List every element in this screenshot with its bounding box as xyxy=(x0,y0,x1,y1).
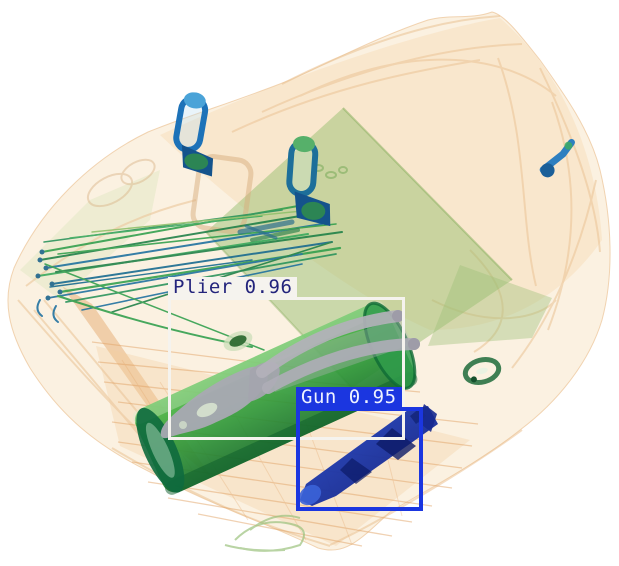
plier-label: Plier 0.96 xyxy=(168,277,297,298)
gun-bounding-box xyxy=(296,407,423,511)
detection-overlay: Plier 0.96 Gun 0.95 xyxy=(0,0,619,566)
gun-label: Gun 0.95 xyxy=(296,387,402,408)
xray-scan-image: Plier 0.96 Gun 0.95 xyxy=(0,0,619,566)
